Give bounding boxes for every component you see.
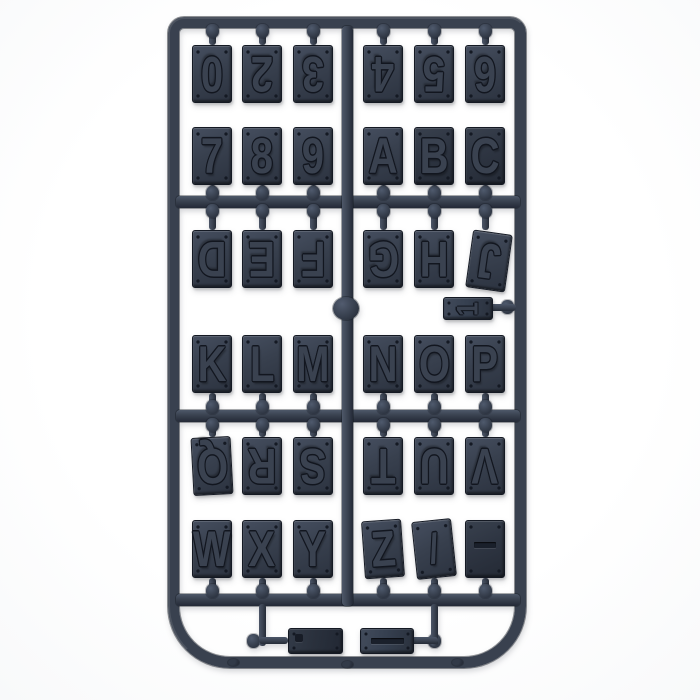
runner-gate: [428, 204, 441, 218]
runner-gate: [377, 400, 390, 414]
runner-gate: [307, 204, 320, 218]
tile-c: C: [465, 127, 505, 185]
tile-3: 3: [293, 45, 333, 103]
tile-n: N: [363, 335, 403, 393]
runner-gate: [206, 418, 219, 432]
runner-gate: [206, 400, 219, 414]
tile-g: G: [363, 230, 403, 288]
glyph-g: G: [367, 234, 398, 284]
glyph-d: D: [198, 234, 227, 284]
glyph-v: V: [472, 441, 499, 491]
tile-6: 6: [465, 45, 505, 103]
glyph-e: E: [249, 234, 276, 284]
gate-nub: [342, 661, 353, 668]
glyph-0: 0: [201, 49, 223, 99]
glyph-dash: [474, 542, 496, 548]
tile-s: S: [293, 437, 333, 495]
runner-gate: [307, 418, 320, 432]
glyph-period: [295, 634, 303, 642]
glyph-c: C: [471, 131, 500, 181]
runner-gate: [256, 418, 269, 432]
tile-k: K: [192, 335, 232, 393]
tile-j: J: [465, 229, 513, 292]
tile-a: A: [363, 127, 403, 185]
tile-7: 7: [192, 127, 232, 185]
glyph-m: M: [296, 339, 329, 389]
runner-gate: [479, 204, 492, 218]
runner-gate: [428, 400, 441, 414]
runner-gate: [479, 400, 492, 414]
glyph-u: U: [420, 441, 449, 491]
runner-gate: [479, 418, 492, 432]
tile-w: W: [192, 520, 232, 578]
tile-e: E: [242, 230, 282, 288]
glyph-7: 7: [201, 131, 223, 181]
tile-z: Z: [361, 519, 405, 580]
glyph-x: X: [249, 524, 276, 574]
tile-o: O: [414, 335, 454, 393]
glyph-9: 9: [302, 131, 324, 181]
glyph-t: T: [371, 441, 395, 491]
tile-m: M: [293, 335, 333, 393]
tile-b: B: [414, 127, 454, 185]
tile-l: L: [242, 335, 282, 393]
tile-y: Y: [293, 520, 333, 578]
tile-v: V: [465, 437, 505, 495]
sprue-runner: [410, 637, 438, 644]
tile-2: 2: [242, 45, 282, 103]
runner-gate: [256, 584, 269, 598]
glyph-l: L: [250, 339, 274, 389]
tile-0: 0: [192, 45, 232, 103]
tile-x: X: [242, 520, 282, 578]
tile-slash: /: [411, 518, 457, 580]
glyph-4: 4: [372, 49, 394, 99]
tile-t: T: [363, 437, 403, 495]
glyph-o: O: [418, 339, 449, 389]
tile-r: R: [242, 437, 282, 495]
sprue-runner: [259, 637, 288, 644]
runner-gate: [479, 186, 492, 200]
runner-gate: [206, 186, 219, 200]
tile-h: H: [414, 230, 454, 288]
glyph-s: S: [300, 441, 327, 491]
glyph-y: Y: [300, 524, 327, 574]
gate-nub: [228, 659, 239, 666]
runner-gate: [377, 584, 390, 598]
sprue: 023456789ABCDEFGHJKLMNOPQRSTUVWXYZ/1: [0, 0, 700, 700]
tile-4: 4: [363, 45, 403, 103]
tile-d: D: [192, 230, 232, 288]
glyph-3: 3: [302, 49, 324, 99]
runner-gate: [307, 24, 320, 38]
glyph-q: Q: [195, 440, 229, 492]
runner-gate: [479, 584, 492, 598]
glyph-b: B: [420, 131, 449, 181]
runner-gate: [256, 186, 269, 200]
tile-5: 5: [414, 45, 454, 103]
runner-gate: [256, 400, 269, 414]
glyph-n: N: [369, 339, 398, 389]
glyph-p: P: [472, 339, 499, 389]
glyph-h: H: [420, 234, 449, 284]
tile-f: F: [293, 230, 333, 288]
glyph-2: 2: [251, 49, 273, 99]
runner-gate: [479, 24, 492, 38]
runner-gate: [377, 24, 390, 38]
small-tile-period: [288, 628, 343, 654]
tile-u: U: [414, 437, 454, 495]
glyph-f: F: [301, 234, 325, 284]
product-photo: 023456789ABCDEFGHJKLMNOPQRSTUVWXYZ/1: [0, 0, 700, 700]
runner-gate: [206, 584, 219, 598]
runner-gate: [377, 418, 390, 432]
small-tile-one: 1: [443, 297, 493, 320]
runner-gate: [206, 24, 219, 38]
runner-gate: [307, 584, 320, 598]
gate-nub: [452, 659, 463, 666]
tile-p: P: [465, 335, 505, 393]
runner-gate: [206, 204, 219, 218]
runner-gate: [428, 24, 441, 38]
small-tile-i: [360, 628, 414, 654]
glyph-8: 8: [251, 131, 273, 181]
glyph-k: K: [198, 339, 227, 389]
glyph-a: A: [369, 131, 398, 181]
runner-gate: [428, 418, 441, 432]
glyph-i: [371, 638, 404, 644]
glyph-slash: /: [427, 528, 441, 571]
glyph-one: 1: [453, 301, 483, 315]
tile-q: Q: [191, 436, 234, 496]
runner-gate: [428, 186, 441, 200]
runner-gate: [377, 204, 390, 218]
injection-node: [333, 297, 359, 320]
tile-dash: [465, 520, 505, 578]
runner-gate: [256, 204, 269, 218]
tile-8: 8: [242, 127, 282, 185]
runner-gate: [377, 186, 390, 200]
glyph-z: Z: [369, 523, 397, 575]
runner-gate: [256, 24, 269, 38]
runner-gate: [428, 584, 441, 598]
sprue-runner: [490, 304, 516, 311]
glyph-j: J: [475, 235, 504, 288]
glyph-5: 5: [423, 49, 445, 99]
runner-gate: [307, 186, 320, 200]
glyph-r: R: [248, 441, 277, 491]
glyph-6: 6: [474, 49, 496, 99]
glyph-w: W: [193, 524, 231, 574]
tile-9: 9: [293, 127, 333, 185]
runner-gate: [307, 400, 320, 414]
